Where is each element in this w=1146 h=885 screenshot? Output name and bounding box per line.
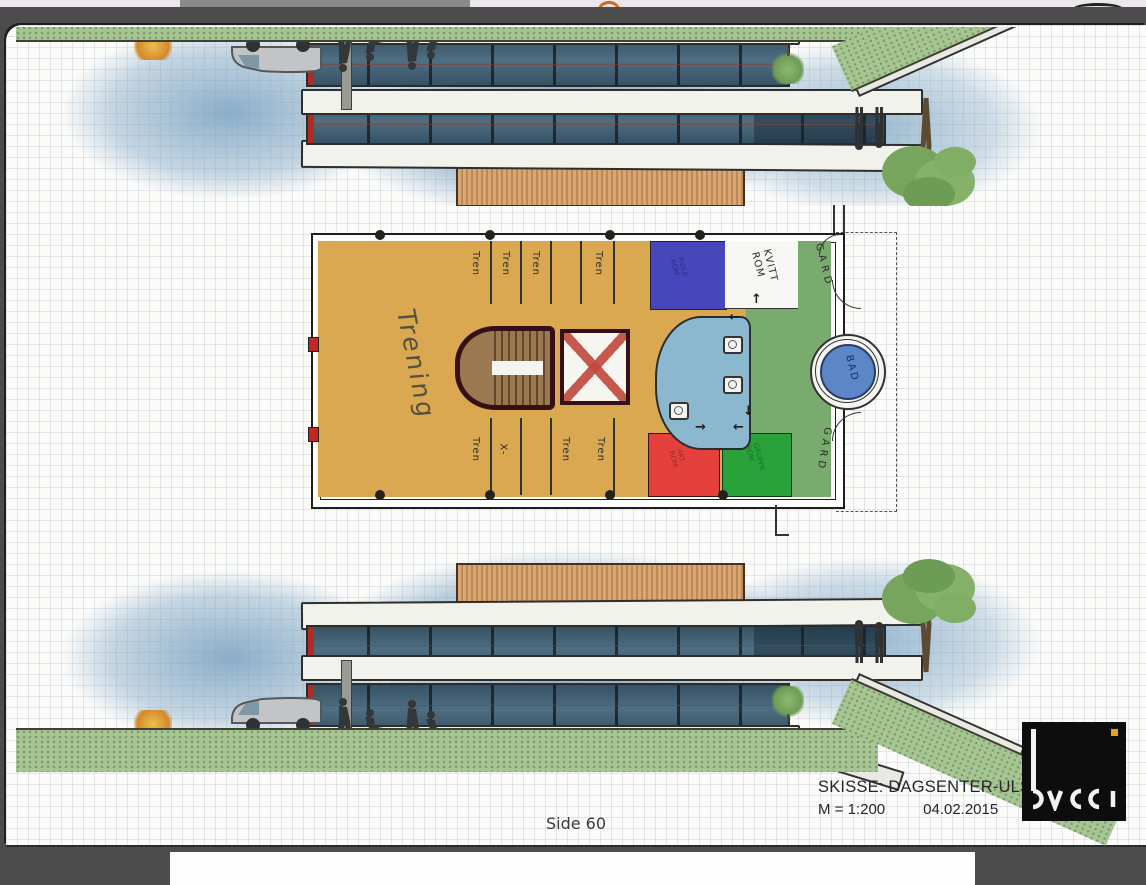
- arrow-down: ↓: [743, 404, 754, 419]
- column-dot: [695, 230, 705, 240]
- column-dot: [718, 490, 728, 500]
- tren-label: Tren: [593, 251, 604, 276]
- arrow-up: ↑: [751, 292, 762, 307]
- architect-logo: [1022, 722, 1126, 821]
- grass-band: [16, 728, 878, 772]
- logo-bar: [1031, 729, 1036, 791]
- page-number-caption: Side 60: [6, 814, 1146, 833]
- floor-plan: KVILEROM KVITTROM GARD GARD AKT.ROM GRUP…: [305, 222, 905, 552]
- partition-line: [490, 241, 492, 304]
- entry-line: [843, 205, 845, 233]
- column-dot: [605, 230, 615, 240]
- wall-marker: [308, 337, 319, 352]
- tree: [869, 552, 985, 679]
- partition-line: [550, 241, 552, 304]
- sketch-stroke: [1072, 3, 1124, 7]
- partition-line: [613, 241, 615, 304]
- blue-room: KVILEROM: [650, 241, 727, 310]
- bottom-elevation: [14, 530, 1132, 820]
- entry-line: [833, 205, 835, 233]
- logo-wordmark: [1029, 787, 1119, 816]
- top-elevation-mirrored: [14, 27, 1132, 206]
- stairwell: [455, 326, 555, 410]
- sketch-stroke: [180, 0, 470, 7]
- green-shrub: [772, 686, 804, 718]
- green-shrub: [772, 52, 804, 84]
- tren-label: Tren: [530, 251, 541, 276]
- logo-accent-square: [1111, 729, 1118, 736]
- grass-band: [16, 27, 878, 42]
- partition-line: [550, 418, 552, 495]
- tren-label: Tren: [500, 251, 511, 276]
- partition-line: [520, 241, 522, 304]
- arrow-right: →: [695, 420, 706, 435]
- partition-line: [580, 241, 582, 304]
- future-extension-dashed: [836, 232, 897, 512]
- partition-line: [520, 418, 522, 495]
- sketch-stroke: [690, 2, 750, 7]
- toilet-fixture: [723, 376, 743, 394]
- sketch-stroke: [40, 2, 74, 7]
- wall-marker: [308, 427, 319, 442]
- lift-shaft: [560, 329, 630, 405]
- arrow-left: ←: [733, 420, 744, 435]
- tren-label: Tren: [470, 437, 481, 462]
- arrow-left: ←: [729, 310, 740, 325]
- tren-label: Tren: [560, 437, 571, 462]
- wood-clerestory: [456, 563, 745, 603]
- viewer-background: { "viewer": { "page_caption": "Side 60" …: [0, 0, 1146, 885]
- red-room-label: AKT.ROM: [667, 448, 686, 468]
- column-dot: [485, 490, 495, 500]
- tren-label: Tren: [595, 437, 606, 462]
- column-dot: [375, 490, 385, 500]
- tree: [869, 91, 985, 206]
- mid-slab: [301, 89, 923, 115]
- column-dot: [375, 230, 385, 240]
- x-tren-label: X-: [497, 444, 508, 456]
- partition-line: [613, 418, 615, 495]
- elevation-drawing: [14, 530, 1132, 805]
- previous-page-edge: [0, 0, 1146, 7]
- column-dot: [605, 490, 615, 500]
- sketch-stroke: [598, 1, 620, 7]
- mid-slab: [301, 655, 923, 681]
- blue-room-label: KVILEROM: [669, 256, 689, 279]
- toilet-fixture: [723, 336, 743, 354]
- elevation-drawing: [14, 27, 1132, 206]
- document-page[interactable]: KVILEROM KVITTROM GARD GARD AKT.ROM GRUP…: [6, 25, 1146, 845]
- partition-line: [490, 418, 492, 495]
- column-dot: [485, 230, 495, 240]
- toilet-fixture: [669, 402, 689, 420]
- next-page-edge: [170, 852, 975, 885]
- wood-clerestory: [456, 167, 745, 206]
- tren-label: Tren: [470, 251, 481, 276]
- white-room-label: KVITTROM: [748, 248, 779, 286]
